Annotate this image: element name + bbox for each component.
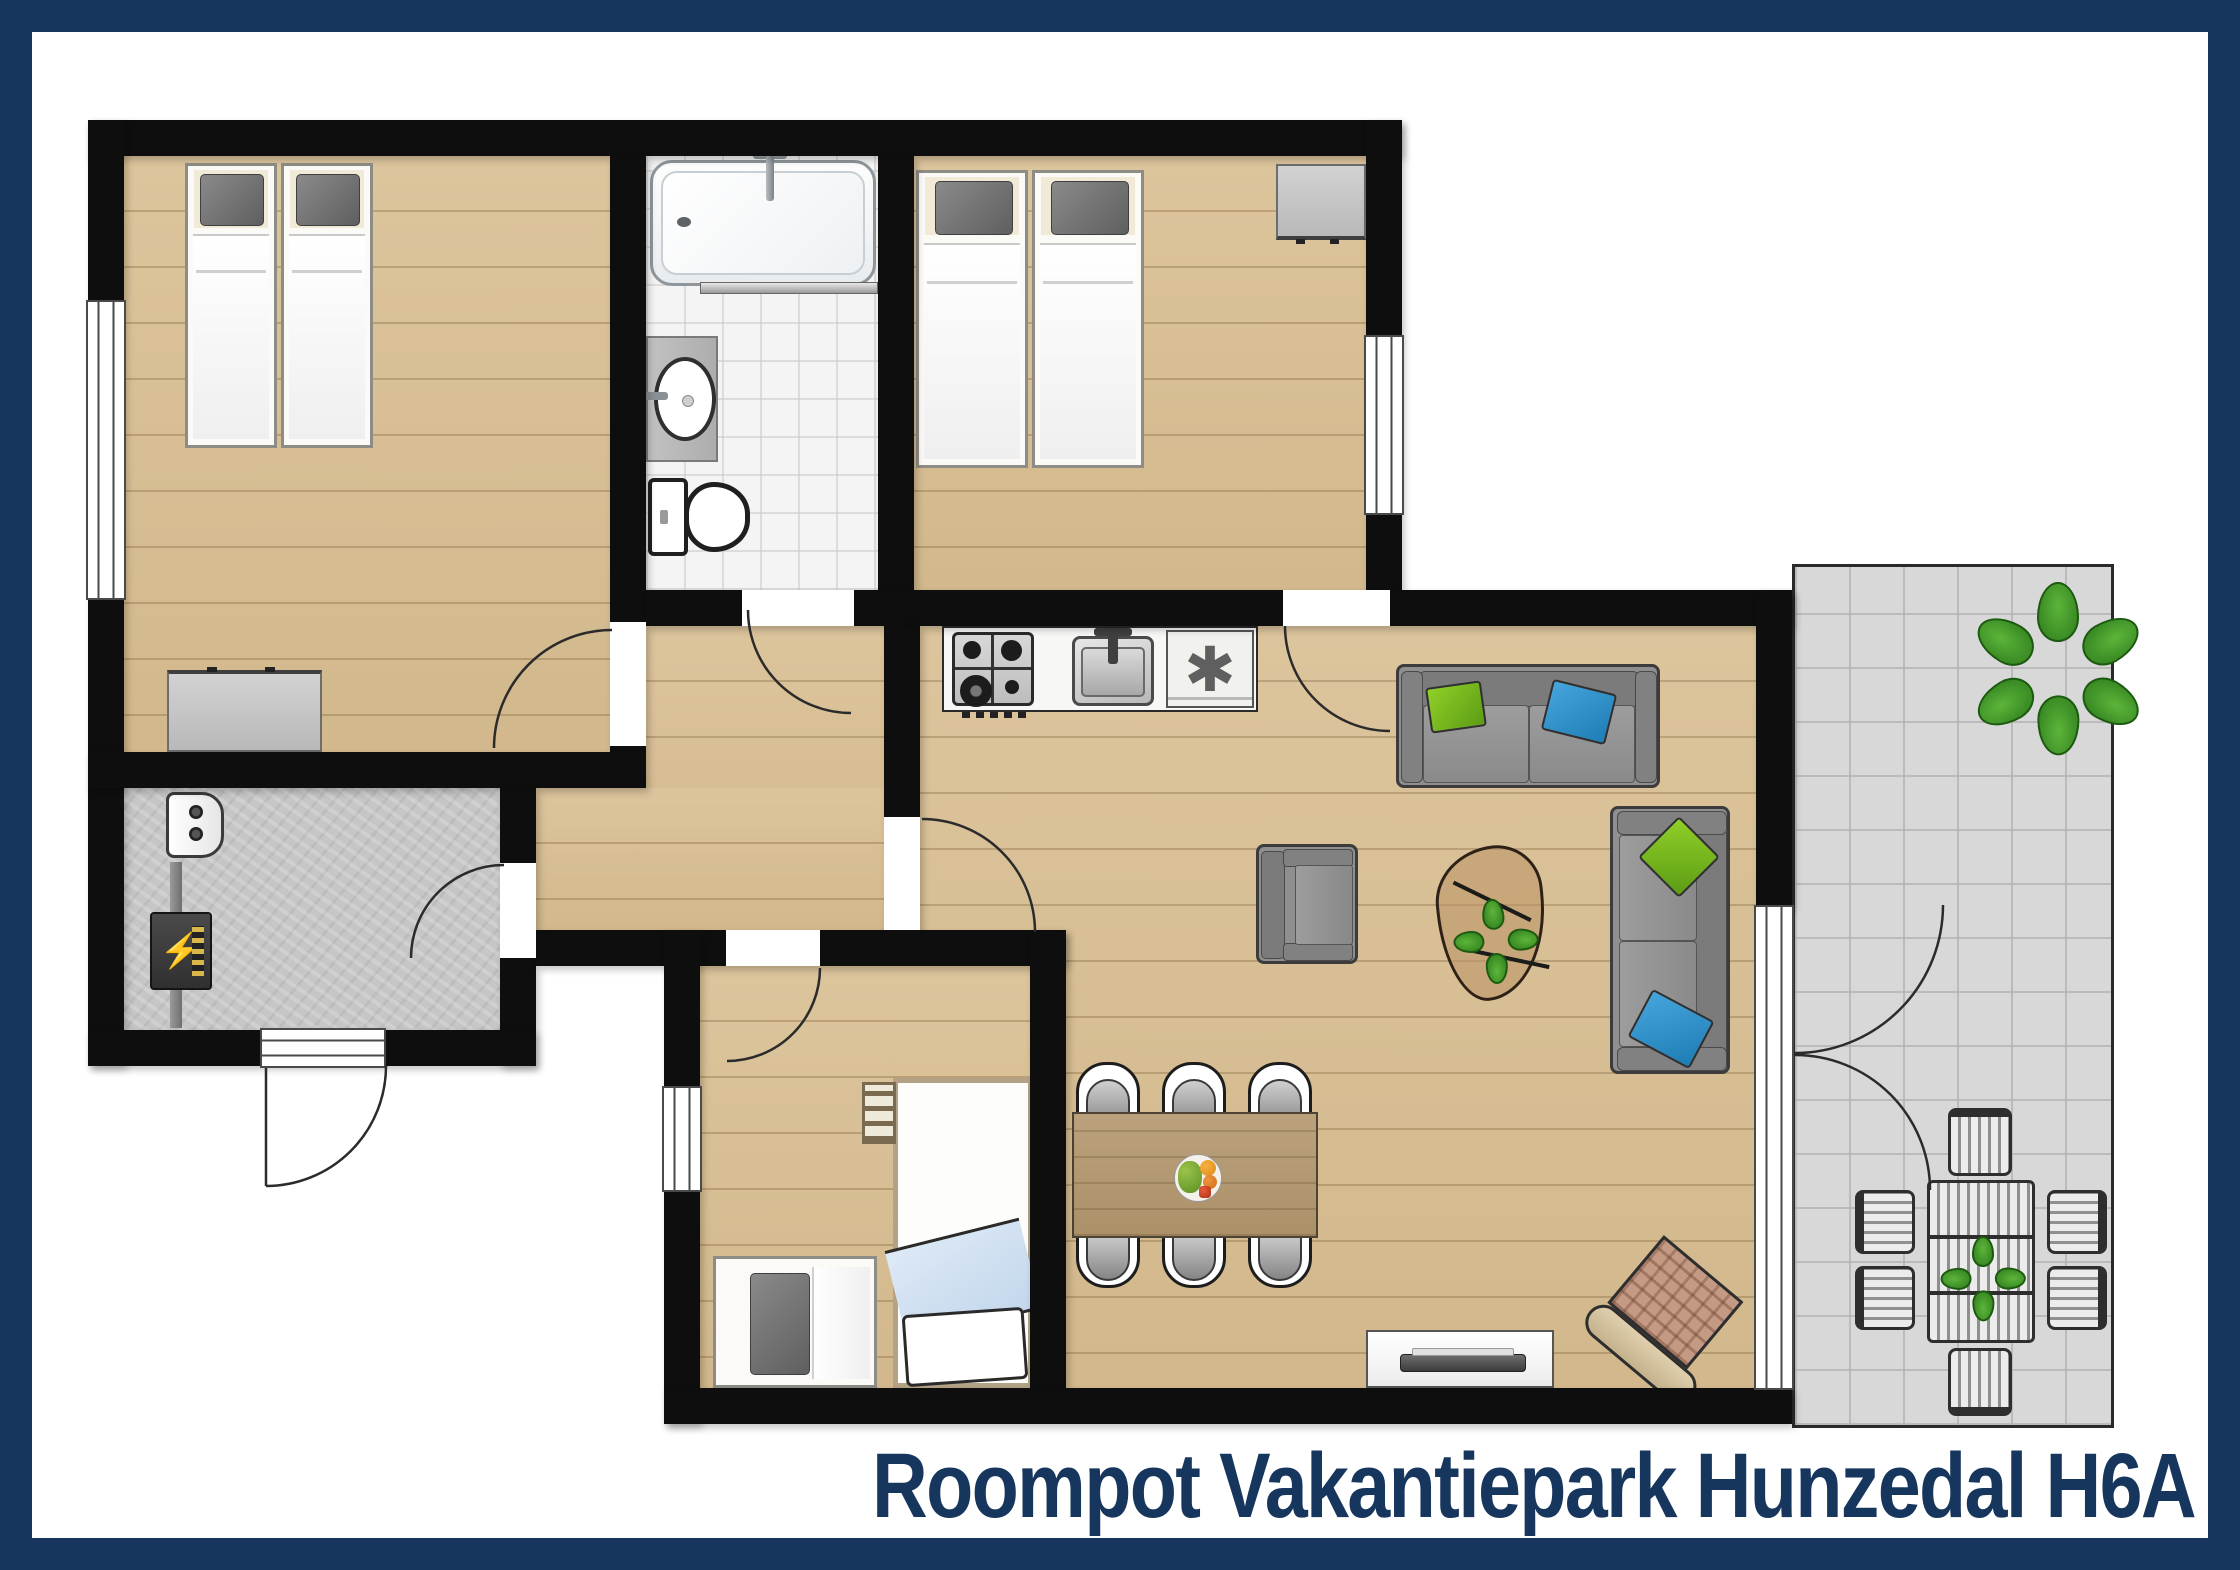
electrical-panel: ⚡ — [150, 912, 212, 990]
wall-south — [664, 1388, 1792, 1424]
cabinet-handle — [1330, 239, 1339, 244]
armchair — [1256, 844, 1358, 964]
bed-pillow — [935, 181, 1013, 235]
entrance-door — [260, 1028, 386, 1068]
sofa-arm — [1401, 671, 1423, 783]
hallway-floor-west — [536, 788, 884, 932]
fruit-bowl — [1174, 1154, 1222, 1202]
garden-chair-north — [1948, 1108, 2012, 1176]
duvet-fold — [927, 281, 1017, 284]
chair-seat — [1172, 1231, 1216, 1281]
dining-table — [1072, 1112, 1318, 1238]
bedroom-3-side-bed — [713, 1256, 877, 1388]
bedroom-3-bed — [893, 1078, 1033, 1388]
tv-sideboard — [1366, 1330, 1554, 1388]
bedroom-3-window — [662, 1086, 702, 1192]
chair-seat — [1086, 1231, 1130, 1281]
bed-pillow — [296, 174, 360, 226]
bedroom-2-bed-left — [916, 170, 1028, 468]
bathtub-faucet-spout — [766, 155, 774, 201]
sink-faucet-bar — [1094, 628, 1132, 636]
page-title: Roompot Vakantiepark Hunzedal H6A — [872, 1440, 2195, 1532]
garden-chair-west-2 — [1855, 1266, 1915, 1330]
bathtub — [650, 160, 876, 286]
wall-north — [88, 120, 1402, 156]
bed-duvet — [193, 234, 269, 439]
frame-bottom — [0, 1538, 2240, 1570]
sofa-arm — [1635, 671, 1657, 783]
bed-pillow — [200, 174, 264, 226]
plant-leaf — [1972, 1291, 1994, 1322]
garden-chair-west-1 — [1855, 1190, 1915, 1254]
hob-knobs — [962, 712, 1026, 718]
wall-bedroom1-south — [88, 752, 646, 788]
tv-stand — [1412, 1348, 1514, 1356]
washbasin-drain — [682, 395, 694, 407]
hall-living-door-opening — [884, 817, 920, 930]
duvet-fold — [292, 270, 362, 273]
plant-leaf — [1972, 1236, 1994, 1267]
bedroom-2-bed-right — [1032, 170, 1144, 468]
armchair-seat — [1295, 865, 1353, 945]
hob-burner-large — [960, 675, 992, 707]
shower-rail — [700, 282, 878, 294]
bed-duvet — [924, 243, 1020, 459]
toilet-bowl — [684, 482, 750, 552]
garden-chair-east-2 — [2047, 1266, 2107, 1330]
boiler-dial — [189, 827, 203, 841]
plant-leaf — [2037, 582, 2079, 642]
bathroom-door-opening — [742, 590, 854, 626]
side-bed-pillow — [750, 1273, 810, 1375]
panel-vents — [192, 926, 204, 976]
bedroom-1-dresser — [167, 670, 322, 752]
green-cushion — [1425, 680, 1487, 733]
bedroom-1-door-opening — [610, 622, 646, 746]
duvet-fold — [1043, 281, 1133, 284]
bathtub-inner — [661, 171, 865, 275]
bedroom-1-bed-right — [281, 163, 373, 448]
fruit-red — [1199, 1186, 1211, 1198]
bedroom-2-window — [1364, 335, 1404, 515]
garden-chair-south — [1948, 1348, 2012, 1416]
terrace-plant — [2008, 588, 2104, 684]
hob-burner — [1001, 640, 1022, 661]
terrace-french-doors — [1754, 905, 1794, 1390]
gas-hob — [952, 632, 1034, 706]
fridge-door-seam — [1168, 697, 1252, 700]
plant-leaf — [1508, 928, 1539, 951]
garden-table-plant — [1958, 1238, 2004, 1284]
plant-leaf — [1940, 1268, 1971, 1290]
wall-living-east-upper — [1756, 590, 1792, 908]
boiler-dial — [189, 805, 203, 819]
wall-bath-bedroom2 — [878, 156, 914, 590]
entrance-door-arc — [266, 1066, 386, 1186]
bedroom-1-window — [86, 300, 126, 600]
plant-leaf — [1995, 1268, 2026, 1290]
bedroom-2-cabinet — [1276, 164, 1366, 240]
bed-pillow — [1051, 181, 1129, 235]
duvet-fold — [196, 270, 266, 273]
bed-duvet — [289, 234, 365, 439]
wall-living-north — [1402, 590, 1792, 626]
frame-right — [2208, 0, 2240, 1570]
frame-top — [0, 0, 2240, 32]
utility-pipe — [170, 990, 182, 1028]
hob-grate-line — [955, 667, 1031, 670]
plant-leaf — [1480, 898, 1505, 931]
bedroom-1-bed-left — [185, 163, 277, 448]
side-bed-sheet — [812, 1267, 870, 1379]
coffee-table-plant — [1467, 899, 1518, 950]
chair-seat — [1258, 1231, 1302, 1281]
wall-bedroom3-east — [1030, 930, 1066, 1388]
boiler — [166, 792, 224, 858]
garden-table — [1927, 1180, 2035, 1343]
plant-leaf — [1453, 931, 1484, 954]
bed-duvet — [1040, 243, 1136, 459]
toilet-cistern — [648, 478, 688, 556]
bed-pillow-white — [902, 1307, 1029, 1387]
hob-burner — [963, 641, 981, 659]
frame-left — [0, 0, 32, 1570]
fridge-freezer: ✱ — [1166, 630, 1254, 708]
bunk-ladder — [862, 1082, 896, 1144]
armchair-arm — [1283, 943, 1353, 961]
tv-screen — [1400, 1354, 1526, 1372]
garden-chair-east-1 — [2047, 1190, 2107, 1254]
floorplan-page: ✱ — [0, 0, 2240, 1570]
hob-burner — [1005, 680, 1019, 694]
freezer-star-icon: ✱ — [1184, 636, 1236, 705]
utility-door-opening — [500, 863, 536, 958]
armchair-back — [1261, 851, 1285, 959]
bathtub-drain — [677, 217, 691, 227]
dresser-handle — [265, 667, 275, 672]
dresser-handle — [207, 667, 217, 672]
plant-leaf — [1485, 953, 1508, 984]
cabinet-handle — [1296, 239, 1305, 244]
bedroom-3-door-opening — [726, 930, 820, 966]
fruit-orange — [1200, 1160, 1216, 1176]
toilet-button — [660, 510, 668, 524]
utility-pipe — [170, 862, 182, 912]
bedroom-2-door-opening — [1283, 590, 1390, 626]
